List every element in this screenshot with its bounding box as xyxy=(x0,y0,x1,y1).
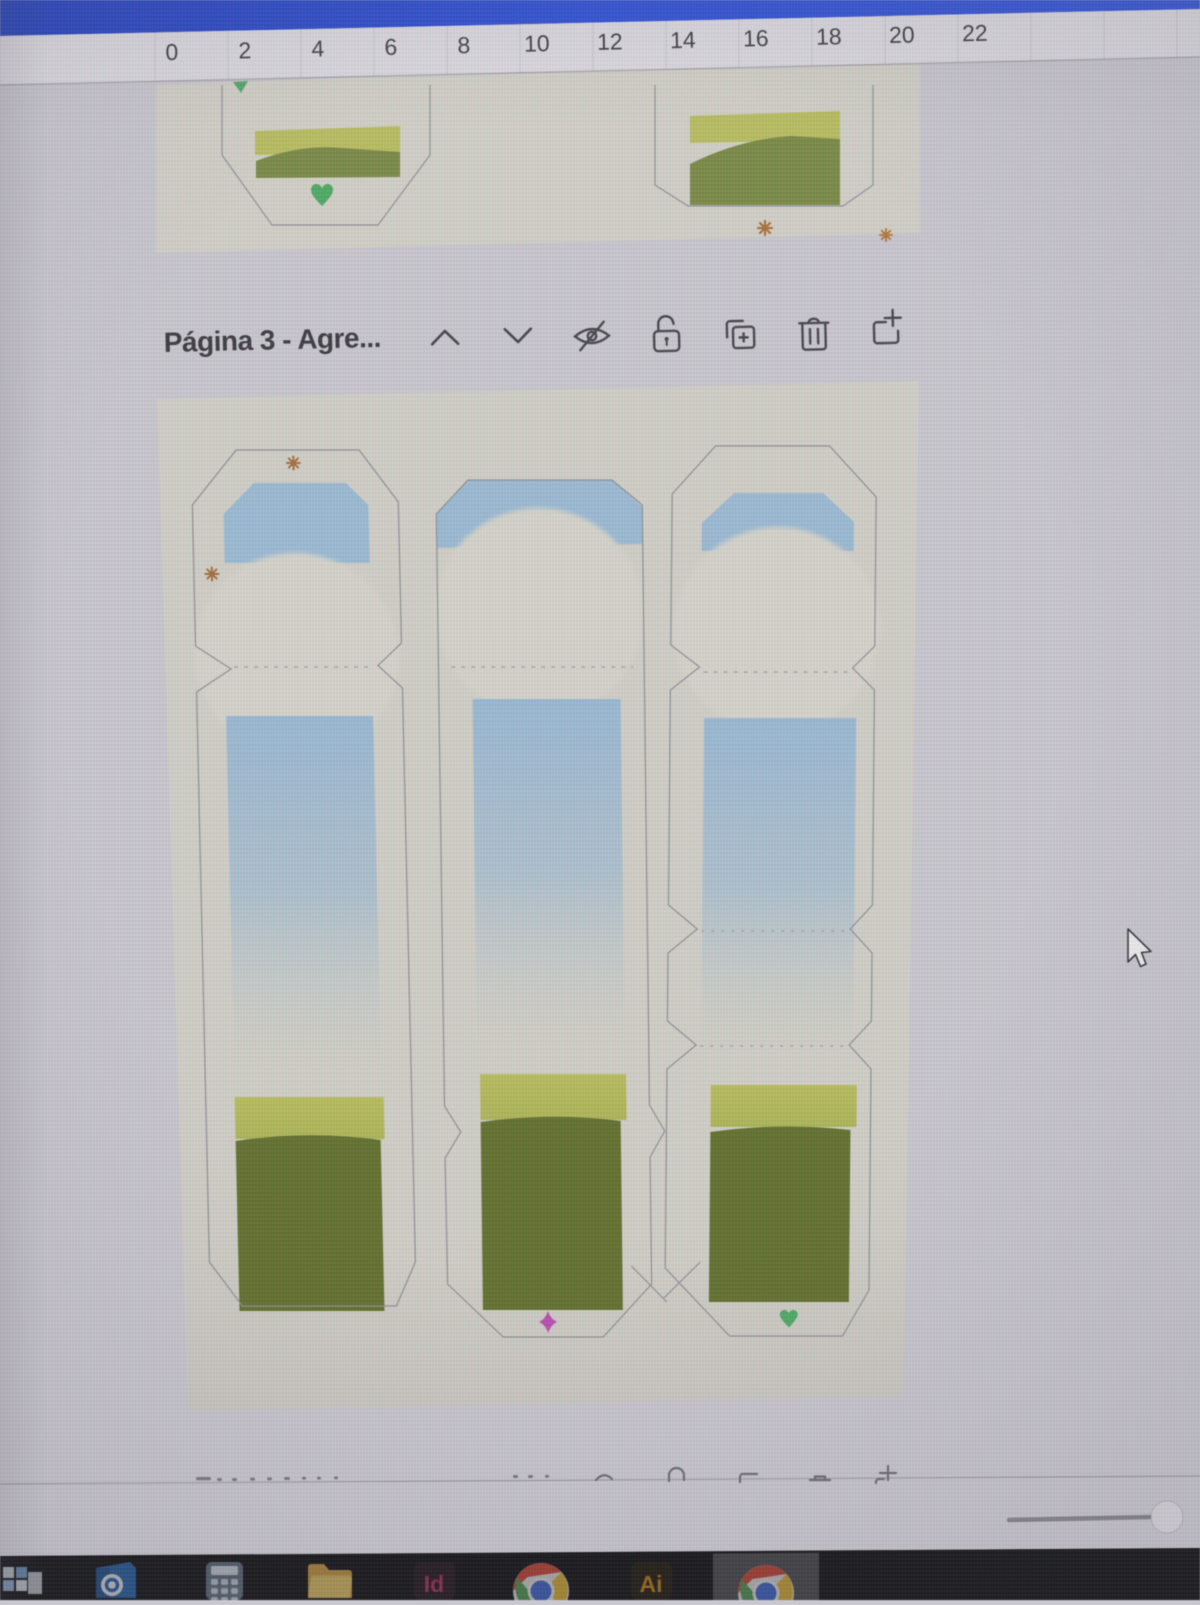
svg-text:8: 8 xyxy=(457,32,470,58)
svg-text:2: 2 xyxy=(238,37,251,63)
svg-text:0: 0 xyxy=(165,39,178,65)
svg-text:4: 4 xyxy=(311,35,325,61)
svg-text:18: 18 xyxy=(816,23,842,50)
svg-text:20: 20 xyxy=(889,21,915,48)
svg-text:6: 6 xyxy=(384,34,397,60)
svg-text:16: 16 xyxy=(743,25,769,52)
svg-text:10: 10 xyxy=(524,30,550,57)
svg-text:Página 3 - Agre...: Página 3 - Agre... xyxy=(163,322,381,358)
svg-text:22: 22 xyxy=(962,20,988,47)
svg-text:12: 12 xyxy=(597,28,623,55)
svg-text:14: 14 xyxy=(670,27,696,54)
